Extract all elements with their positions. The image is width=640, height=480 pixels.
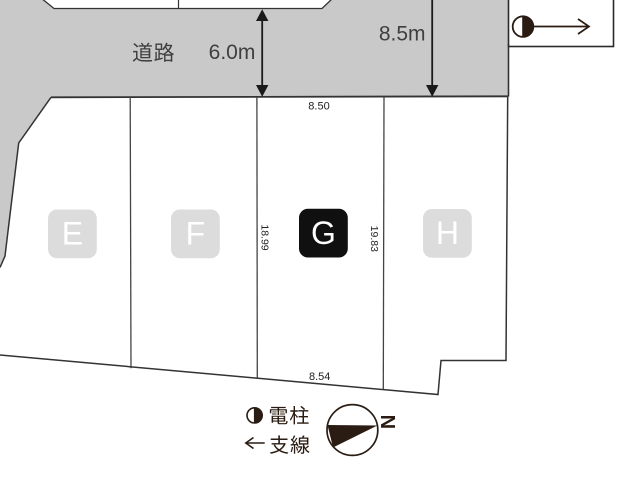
svg-text:6.0m: 6.0m — [209, 41, 256, 64]
svg-text:8.5m: 8.5m — [379, 23, 426, 46]
svg-text:F: F — [186, 215, 206, 251]
svg-text:8.50: 8.50 — [308, 100, 329, 112]
svg-text:N: N — [376, 415, 398, 429]
svg-text:E: E — [62, 215, 83, 251]
svg-text:19.83: 19.83 — [368, 226, 380, 252]
svg-text:G: G — [311, 215, 336, 251]
svg-text:H: H — [436, 215, 459, 251]
svg-text:18.99: 18.99 — [258, 224, 270, 250]
svg-text:8.54: 8.54 — [309, 371, 330, 383]
